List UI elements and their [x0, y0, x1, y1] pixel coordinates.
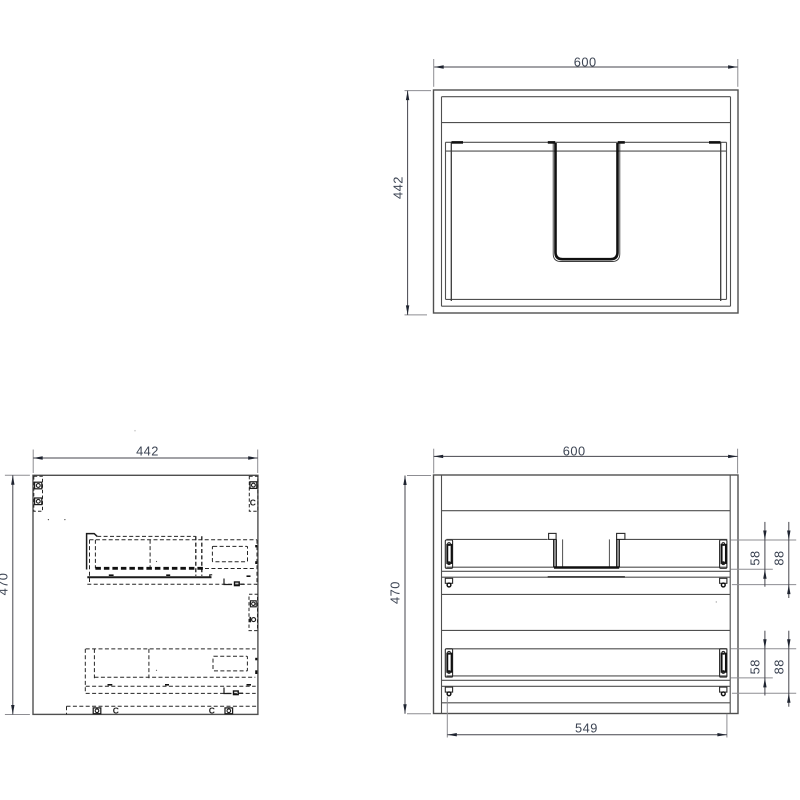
- svg-text:C: C: [209, 706, 215, 716]
- svg-text:600: 600: [563, 443, 586, 458]
- svg-text:442: 442: [136, 443, 159, 458]
- svg-text:58: 58: [748, 659, 763, 674]
- svg-text:549: 549: [575, 720, 598, 735]
- svg-text:600: 600: [574, 55, 597, 70]
- svg-text:88: 88: [771, 550, 786, 565]
- svg-text:88: 88: [771, 659, 786, 674]
- svg-text:442: 442: [390, 176, 405, 199]
- svg-text:C: C: [113, 706, 119, 716]
- svg-text:58: 58: [748, 550, 763, 565]
- svg-text:C: C: [250, 497, 256, 507]
- svg-text:470: 470: [0, 573, 10, 596]
- svg-text:470: 470: [388, 581, 403, 604]
